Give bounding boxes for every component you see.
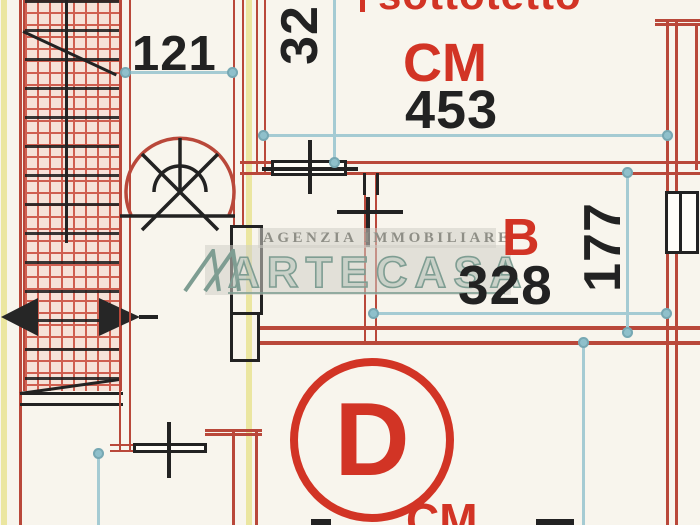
dim-label-177: 177 xyxy=(575,192,631,302)
wall-right xyxy=(666,20,678,525)
stair-arrow-left-icon xyxy=(1,298,38,336)
wall-mid-pair-right xyxy=(256,0,266,172)
wall-top-right xyxy=(655,19,700,26)
wall-left xyxy=(19,0,22,525)
wall-room-b-left-section xyxy=(363,173,379,195)
stair-landing-edge xyxy=(20,392,123,406)
bottom-edge-mark-2 xyxy=(536,519,574,525)
wall-bottom-left-stub xyxy=(110,444,135,452)
wall-room-b-bottom xyxy=(258,326,700,345)
survey-cross-1-horizontal xyxy=(262,167,358,171)
dim-endpoint xyxy=(329,157,340,168)
guide-line-left xyxy=(1,0,7,525)
survey-cross-bottom-vertical xyxy=(167,422,171,478)
dim-endpoint xyxy=(622,327,633,338)
window-right-wall-mullion xyxy=(679,194,682,251)
dim-endpoint xyxy=(662,130,673,141)
dim-label-32: 32 xyxy=(272,0,328,70)
dim-endpoint xyxy=(258,130,269,141)
dim-label-121: 121 xyxy=(132,30,217,79)
wall-bottom-mid-vertical xyxy=(232,430,258,525)
dim-line-room-d xyxy=(582,342,585,525)
stair-rail-line xyxy=(65,0,68,243)
bottom-edge-mark-1 xyxy=(311,519,331,525)
dim-label-328: 328 xyxy=(458,258,553,313)
unit-label-bottom: CM xyxy=(406,497,478,525)
window-right-wall xyxy=(665,191,699,254)
dim-line-left-room xyxy=(97,453,100,525)
floor-plan: AGENZIA IMMOBILIARE ARTECASA sottotetto … xyxy=(0,0,700,525)
dim-endpoint xyxy=(93,448,104,459)
wall-right-edge xyxy=(695,25,698,170)
spiral-stair-icon xyxy=(120,130,240,255)
watermark-agency-text: AGENZIA IMMOBILIARE xyxy=(263,230,512,247)
dim-endpoint xyxy=(368,308,379,319)
dim-endpoint xyxy=(227,67,238,78)
dim-endpoint xyxy=(622,167,633,178)
dim-line-32 xyxy=(333,0,336,163)
cut-text-mark xyxy=(360,0,365,12)
dim-endpoint xyxy=(661,308,672,319)
room-d-label: D xyxy=(334,388,409,492)
dim-endpoint xyxy=(578,337,589,348)
shaft-wall-lower xyxy=(230,312,260,362)
survey-cross-2-horizontal xyxy=(337,210,403,214)
stair-arrow-tail xyxy=(139,315,158,319)
dim-label-453: 453 xyxy=(405,83,498,137)
wall-bottom-mid-horizontal xyxy=(205,429,262,436)
area-title: sottotetto xyxy=(378,0,582,16)
dim-endpoint xyxy=(120,67,131,78)
